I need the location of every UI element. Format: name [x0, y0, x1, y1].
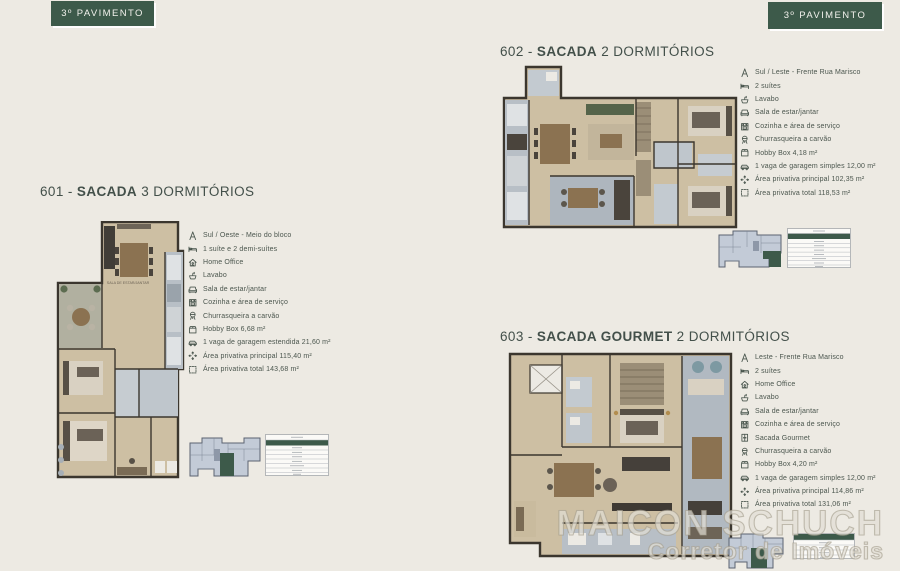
feature-text: Lavabo [755, 96, 779, 103]
floorplan-602 [502, 64, 738, 234]
feature-item: Churrasqueira a carvão [188, 309, 388, 322]
feature-text: 2 suítes [755, 83, 781, 90]
unit-title-rooms: 2 DORMITÓRIOS [673, 329, 790, 344]
floorplan-601: SALA DE ESTAR/JANTAR [55, 221, 185, 484]
feature-item: Sala de estar/jantar [740, 106, 898, 119]
feature-text: 1 vaga de garagem simples 12,00 m² [755, 475, 876, 482]
keyplan-601 [188, 432, 333, 478]
unit-title-number: 602 - [500, 44, 537, 59]
floorplan-603 [502, 351, 738, 564]
feature-text: 2 suítes [755, 368, 781, 375]
unit-title-type: SACADA [77, 184, 137, 199]
expand-icon [740, 175, 750, 185]
feature-item: Cozinha e área de serviço [188, 296, 388, 309]
compass-icon [740, 68, 750, 78]
bed-icon [740, 366, 750, 376]
feature-item: Área privativa total 143,68 m² [188, 363, 388, 376]
balcony-icon [740, 433, 750, 443]
feature-item: Área privativa total 118,53 m² [740, 187, 898, 200]
feature-item: 1 vaga de garagem estendida 21,60 m² [188, 336, 388, 349]
car-icon [740, 473, 750, 483]
feature-text: Hobby Box 4,20 m² [755, 461, 817, 468]
feature-text: Área privativa principal 114,86 m² [755, 488, 864, 495]
feature-item: Área privativa principal 102,35 m² [740, 173, 898, 186]
floorplan-603-svg [502, 351, 738, 559]
feature-text: Sala de estar/jantar [755, 408, 819, 415]
feature-text: Hobby Box 6,68 m² [203, 326, 265, 333]
feature-item: Churrasqueira a carvão [740, 445, 898, 458]
unit-title-number: 601 - [40, 184, 77, 199]
grill-icon [188, 311, 198, 321]
keyplan-601-table [265, 434, 329, 476]
feature-item: Cozinha e área de serviço [740, 120, 898, 133]
keyplan-602-table [787, 228, 851, 268]
feature-text: Hobby Box 4,18 m² [755, 150, 817, 157]
feature-item: Churrasqueira a carvão [740, 133, 898, 146]
keyplan-603-table [793, 533, 855, 559]
feature-text: Cozinha e área de serviço [755, 421, 840, 428]
kitchen-icon [740, 121, 750, 131]
unit-title-number: 603 - [500, 329, 537, 344]
outline-icon [188, 365, 198, 375]
sofa-icon [740, 108, 750, 118]
feature-item: Hobby Box 4,20 m² [740, 458, 898, 471]
sink-icon [188, 271, 198, 281]
kitchen-icon [188, 298, 198, 308]
feature-text: Leste - Frente Rua Marisco [755, 354, 844, 361]
unit-601-title: 601 - SACADA 3 DORMITÓRIOS [40, 184, 254, 199]
outline-icon [740, 500, 750, 510]
feature-text: Lavabo [203, 272, 227, 279]
sink-icon [740, 393, 750, 403]
keyplan-602 [717, 228, 857, 270]
feature-item: 1 vaga de garagem simples 12,00 m² [740, 472, 898, 485]
grill-icon [740, 135, 750, 145]
kitchen-icon [740, 420, 750, 430]
feature-item: Lavabo [740, 93, 898, 106]
feature-text: Churrasqueira a carvão [755, 136, 831, 143]
feature-item: 1 suíte e 2 demi-suítes [188, 242, 388, 255]
feature-text: Sala de estar/jantar [755, 109, 819, 116]
feature-item: Home Office [740, 378, 898, 391]
feature-text: 1 suíte e 2 demi-suítes [203, 246, 277, 253]
feature-item: Hobby Box 4,18 m² [740, 146, 898, 159]
feature-text: Área privativa total 118,53 m² [755, 190, 850, 197]
feature-text: Área privativa principal 115,40 m² [203, 353, 312, 360]
unit-603-title: 603 - SACADA GOURMET 2 DORMITÓRIOS [500, 329, 790, 344]
feature-item: Cozinha e área de serviço [740, 418, 898, 431]
unit-601-features: Sul / Oeste - Meio do bloco1 suíte e 2 d… [188, 229, 388, 376]
floor-banner-right: 3º PAVIMENTO [768, 2, 882, 29]
feature-item: Área privativa total 131,06 m² [740, 498, 898, 511]
feature-item: Lavabo [188, 269, 388, 282]
feature-item: Sul / Leste - Frente Rua Marisco [740, 66, 898, 79]
feature-text: Sala de estar/jantar [203, 286, 267, 293]
home-office-icon [740, 379, 750, 389]
feature-text: Sul / Oeste - Meio do bloco [203, 232, 291, 239]
feature-item: Leste - Frente Rua Marisco [740, 351, 898, 364]
feature-item: Sala de estar/jantar [188, 283, 388, 296]
feature-text: 1 vaga de garagem estendida 21,60 m² [203, 339, 331, 346]
expand-icon [740, 487, 750, 497]
keyplan-601-plate [188, 435, 262, 479]
outline-icon [740, 188, 750, 198]
feature-text: Área privativa principal 102,35 m² [755, 176, 864, 183]
sink-icon [740, 94, 750, 104]
feature-item: Lavabo [740, 391, 898, 404]
unit-602-features: Sul / Leste - Frente Rua Marisco2 suítes… [740, 66, 898, 200]
bed-icon [740, 81, 750, 91]
feature-text: Sul / Leste - Frente Rua Marisco [755, 69, 861, 76]
feature-text: Home Office [203, 259, 243, 266]
box-icon [188, 324, 198, 334]
feature-text: 1 vaga de garagem simples 12,00 m² [755, 163, 876, 170]
feature-item: Sul / Oeste - Meio do bloco [188, 229, 388, 242]
sofa-icon [740, 406, 750, 416]
feature-text: Sacada Gourmet [755, 435, 810, 442]
unit-title-type: SACADA [537, 44, 597, 59]
feature-item: Sacada Gourmet [740, 431, 898, 444]
unit-title-rooms: 2 DORMITÓRIOS [597, 44, 714, 59]
feature-item: Hobby Box 6,68 m² [188, 323, 388, 336]
feature-item: 1 vaga de garagem simples 12,00 m² [740, 160, 898, 173]
grill-icon [740, 446, 750, 456]
feature-item: Área privativa principal 115,40 m² [188, 350, 388, 363]
home-office-icon [188, 257, 198, 267]
feature-item: Home Office [188, 256, 388, 269]
feature-text: Churrasqueira a carvão [203, 313, 279, 320]
feature-text: Churrasqueira a carvão [755, 448, 831, 455]
box-icon [740, 148, 750, 158]
floor-banner-left: 3º PAVIMENTO [51, 1, 154, 26]
feature-text: Cozinha e área de serviço [203, 299, 288, 306]
unit-603-features: Leste - Frente Rua Marisco2 suítesHome O… [740, 351, 898, 512]
unit-602-title: 602 - SACADA 2 DORMITÓRIOS [500, 44, 714, 59]
box-icon [740, 460, 750, 470]
sofa-icon [188, 284, 198, 294]
bed-icon [188, 244, 198, 254]
feature-item: Sala de estar/jantar [740, 405, 898, 418]
compass-icon [740, 353, 750, 363]
feature-text: Área privativa total 143,68 m² [203, 366, 299, 373]
feature-text: Lavabo [755, 394, 779, 401]
feature-text: Home Office [755, 381, 795, 388]
floorplan-602-svg [502, 64, 738, 229]
brochure-page: 3º PAVIMENTO 3º PAVIMENTO 601 - SACADA 3… [0, 0, 900, 571]
compass-icon [188, 231, 198, 241]
floorplan-601-svg: SALA DE ESTAR/JANTAR [55, 221, 185, 479]
feature-item: Área privativa principal 114,86 m² [740, 485, 898, 498]
unit-title-type: SACADA GOURMET [537, 329, 673, 344]
car-icon [740, 161, 750, 171]
car-icon [188, 338, 198, 348]
unit-title-rooms: 3 DORMITÓRIOS [137, 184, 254, 199]
keyplan-603-plate [727, 532, 785, 571]
keyplan-603 [727, 532, 855, 571]
room-label-sala: SALA DE ESTAR/JANTAR [107, 281, 150, 285]
feature-text: Cozinha e área de serviço [755, 123, 840, 130]
keyplan-602-plate [717, 229, 783, 270]
feature-item: 2 suítes [740, 364, 898, 377]
expand-icon [188, 351, 198, 361]
feature-text: Área privativa total 131,06 m² [755, 501, 851, 508]
feature-item: 2 suítes [740, 79, 898, 92]
